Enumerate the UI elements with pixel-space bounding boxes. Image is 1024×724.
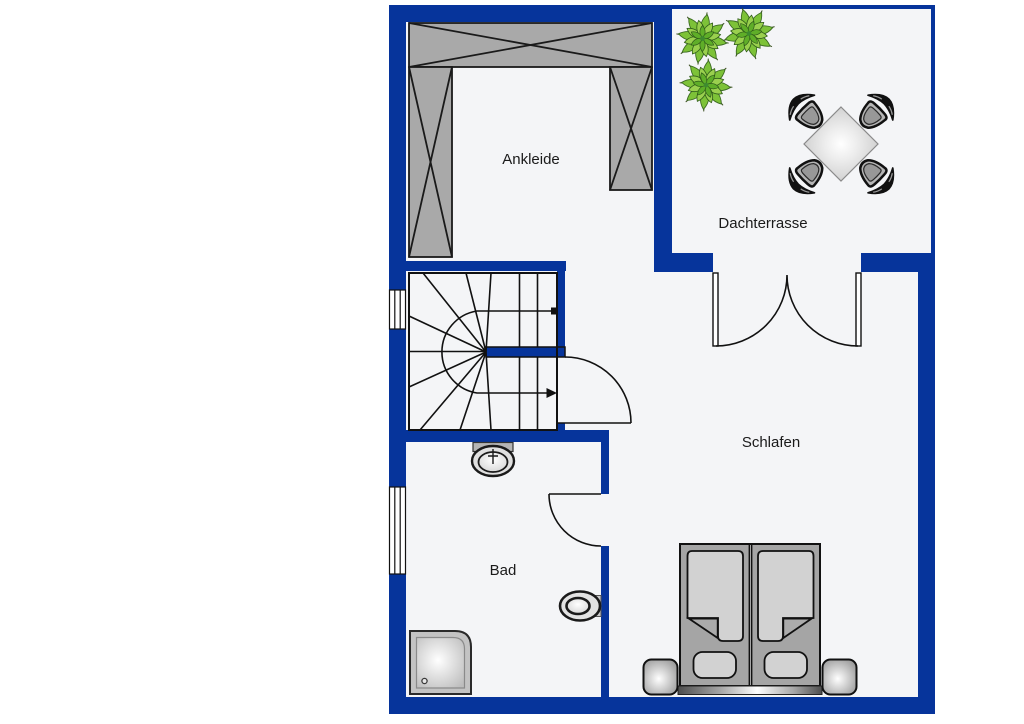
svg-text:Bad: Bad: [490, 562, 517, 579]
svg-text:Dachterrasse: Dachterrasse: [718, 215, 807, 232]
svg-text:Ankleide: Ankleide: [502, 151, 560, 168]
svg-text:Schlafen: Schlafen: [742, 434, 800, 451]
